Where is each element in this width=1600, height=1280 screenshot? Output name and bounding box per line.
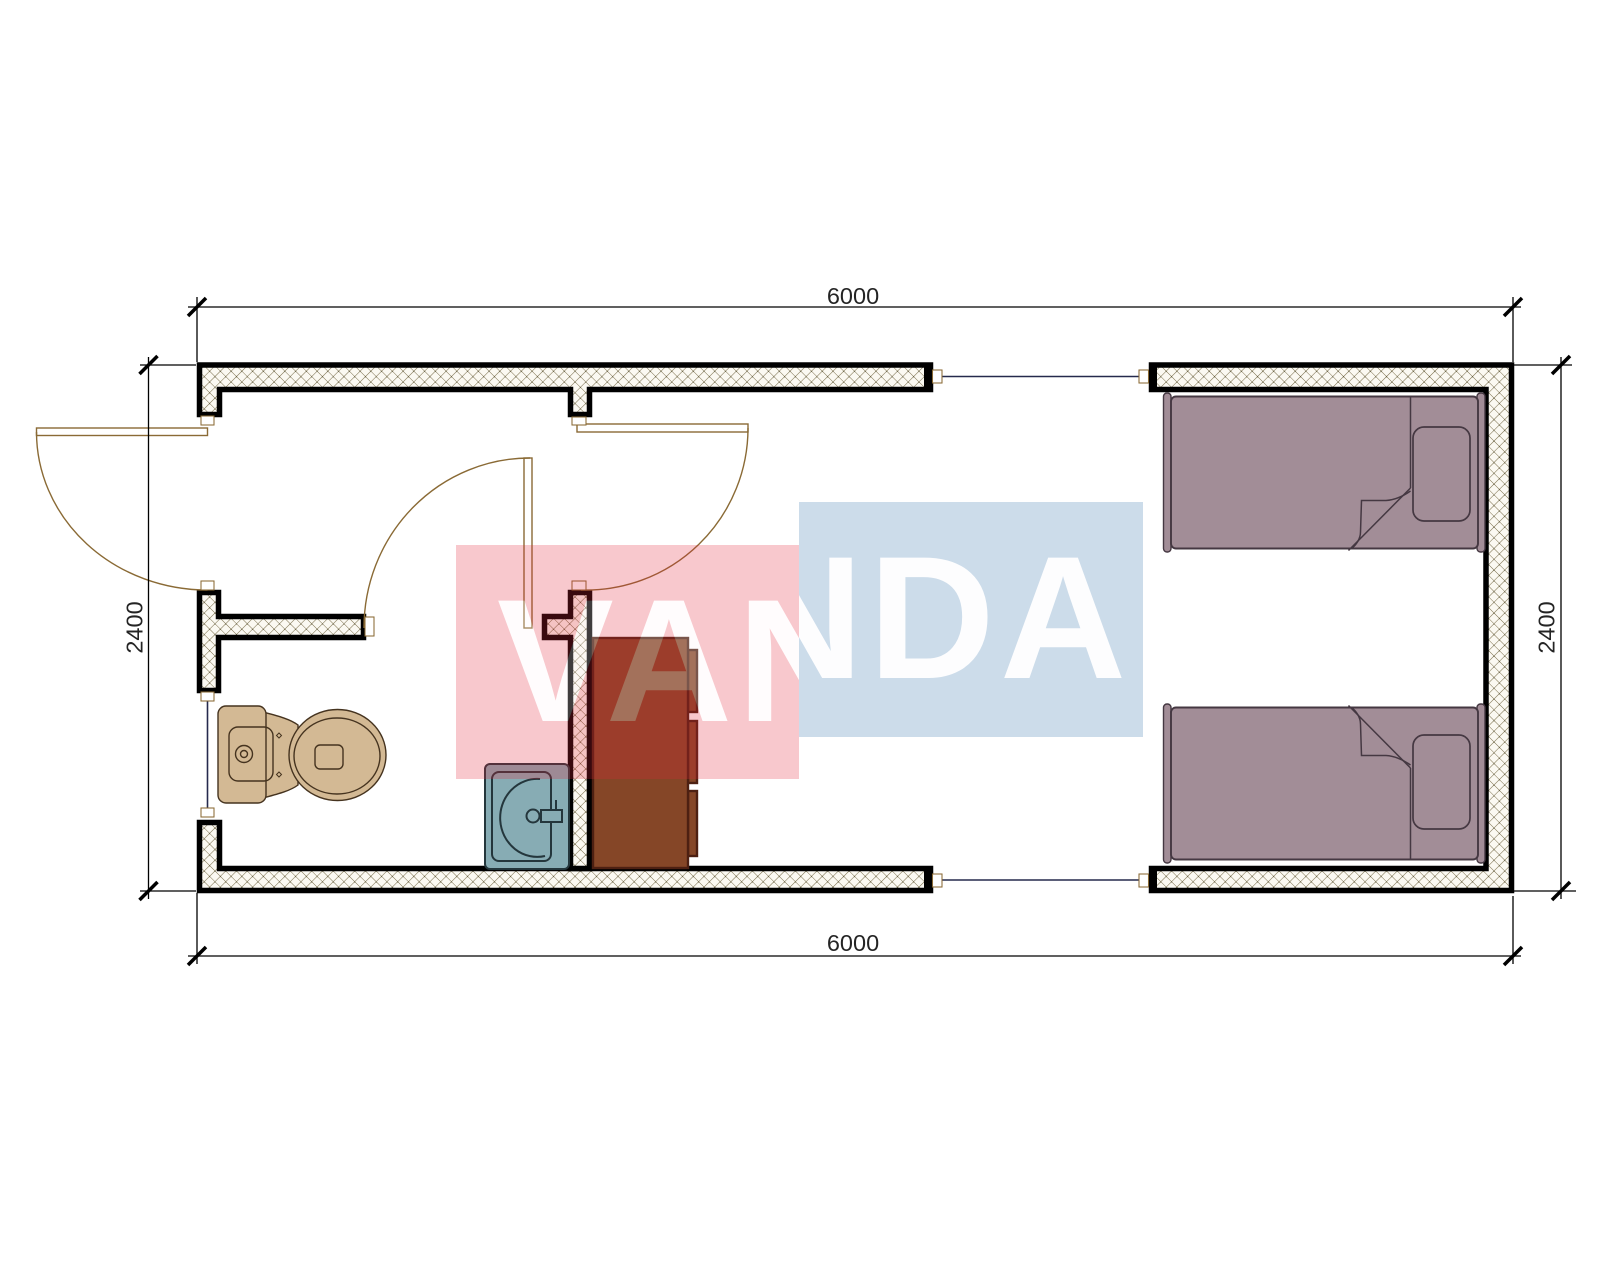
svg-text:2400: 2400 [122, 601, 148, 653]
svg-text:6000: 6000 [827, 283, 879, 309]
svg-text:6000: 6000 [827, 930, 879, 956]
svg-text:2400: 2400 [1534, 601, 1560, 653]
